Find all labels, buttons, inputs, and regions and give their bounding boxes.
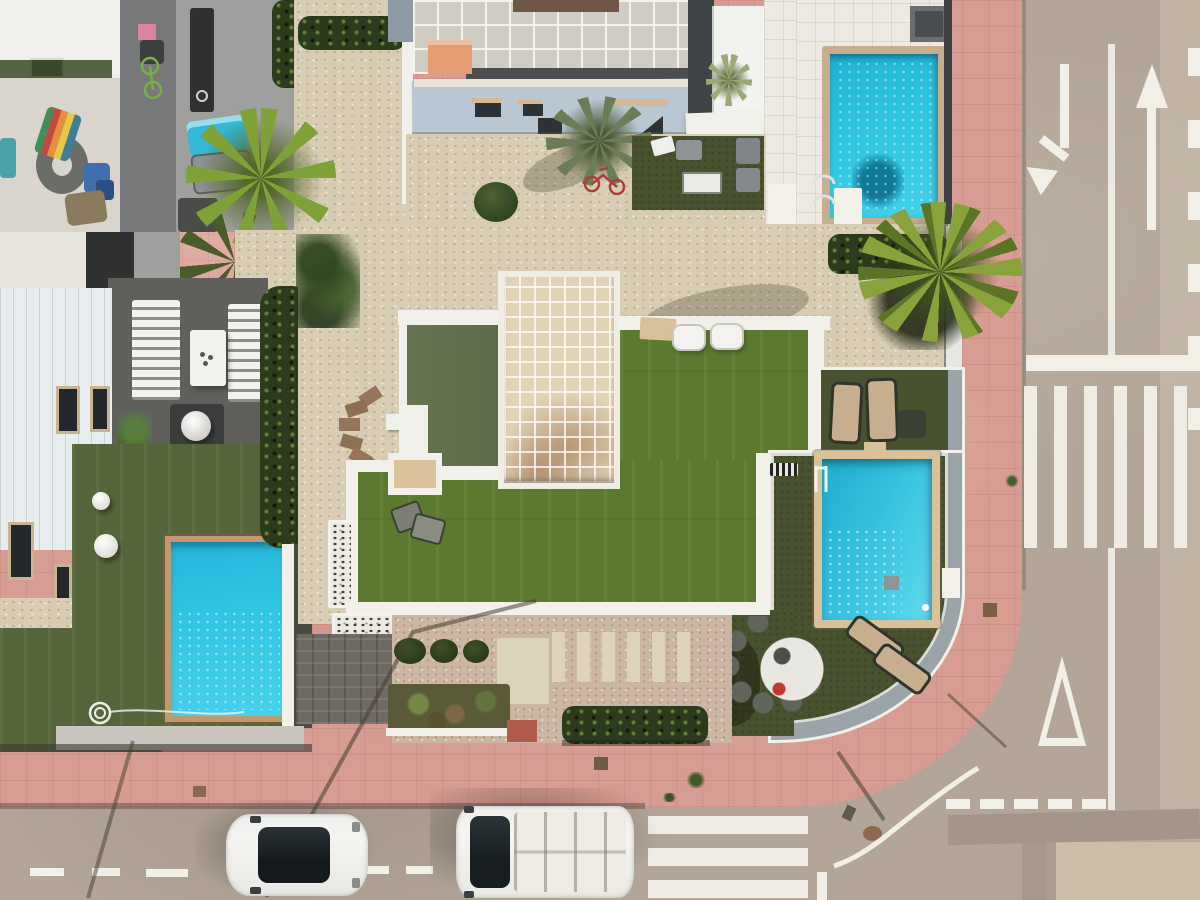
car-roof-glass <box>258 827 330 883</box>
van-roof-racks <box>514 812 626 892</box>
street-lamp-shadow <box>948 694 1006 747</box>
street-lamp-shadow <box>88 741 133 898</box>
corner-edge-arc <box>834 768 978 866</box>
street-lamp-pole-shadow <box>838 752 884 820</box>
van-mirror <box>464 806 474 813</box>
van-windshield <box>470 816 510 888</box>
detail-overlay <box>0 0 1200 900</box>
garden-hose-coil-inner <box>95 708 105 718</box>
red-bicycle <box>585 168 624 194</box>
car-mirror <box>250 887 261 894</box>
pool-ladder-top <box>814 176 834 204</box>
van-mirror <box>464 891 474 898</box>
pool-ladder-main <box>816 466 826 492</box>
car-taillight <box>352 822 360 832</box>
white-van <box>456 806 634 898</box>
garden-hose-line <box>110 710 244 713</box>
aerial-photo-stage <box>0 0 1200 900</box>
car-mirror <box>250 816 261 823</box>
white-hatchback-car <box>226 814 368 896</box>
garden-hose-coil <box>90 703 110 723</box>
green-bicycle <box>142 58 161 98</box>
car-taillight <box>352 878 360 888</box>
